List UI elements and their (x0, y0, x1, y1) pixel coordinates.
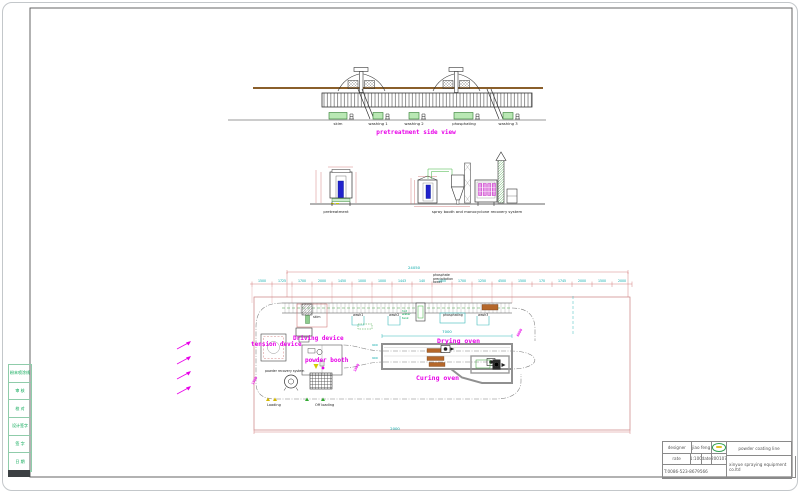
dim-chain-value: 1000 (434, 279, 450, 283)
curing-oven-label: Curing oven (416, 375, 459, 382)
company-cell: xinyue spraying equipment co.ltd (727, 456, 796, 478)
dim-chain-value: 2000 (314, 279, 330, 283)
logo-cell (712, 442, 727, 454)
date-value: 200107 (712, 454, 727, 466)
plan-label-wash1: wash1 (353, 314, 363, 317)
plan-label-wash2: wash2 (389, 314, 399, 317)
spray-booth-elevation (411, 152, 517, 207)
signature-cell-1: 粉末喷涂线 (9, 365, 31, 383)
drying-oven-label: Drying oven (437, 338, 480, 345)
dim-chain-value: 1700 (454, 279, 470, 283)
dim-chain-value: 1450 (334, 279, 350, 283)
offloading-label: Off loading (315, 404, 334, 408)
conveyor-loop-path (256, 303, 535, 399)
plan-label-phosphating: phosphating (443, 314, 463, 317)
dim-chain-value: 170 (534, 279, 550, 283)
dim-bottom: 2000 (390, 427, 400, 431)
dim-oven-length: 7000 (442, 330, 452, 334)
tension-device-label: tension device (251, 342, 302, 348)
pretreatment-elevation (316, 167, 356, 206)
dim-chain-value: 1443 (394, 279, 410, 283)
designer-label: designer (663, 442, 692, 454)
drawing-sheet: { "frame": { "sidebar_cells": ["粉末喷涂线", … (0, 0, 800, 493)
elevation-drawings (310, 152, 545, 207)
side-view-title: pretreatment side view (376, 130, 455, 136)
dim-chain-value: 1500 (514, 279, 530, 283)
signature-strip: 粉末喷涂线 审 核 校 对 设计签字 签 字 日 期 (8, 364, 32, 472)
plan-view-drawing (177, 270, 632, 434)
powder-recovery-system (284, 373, 332, 391)
pretreatment-tanks (329, 113, 513, 120)
plan-label-skim: skim (313, 316, 321, 319)
dim-chain-value: 4500 (494, 279, 510, 283)
designer-value: jiao feng (692, 442, 712, 454)
signature-cell-4: 设计签字 (9, 418, 31, 436)
plan-label-wash3: wash3 (478, 314, 488, 317)
pretreatment-elevation-label: pretreatment (323, 210, 348, 214)
dim-chain-value: 1250 (474, 279, 490, 283)
tank-label-phosphating: phosphating (452, 122, 476, 126)
dim-overall-top: 24050 (408, 266, 420, 270)
conveyor-brown-unit (482, 305, 498, 311)
tank-label-washing2: washing 2 (404, 122, 423, 126)
signature-strip-footer (8, 470, 30, 477)
dim-chain-value: 1725 (274, 279, 290, 283)
dim-chain-value: 140 (414, 279, 430, 283)
burner-motor-1 (441, 346, 455, 353)
drawing-frame (30, 8, 792, 477)
title-block: designer jiao feng rate 1:100 date 20010… (662, 441, 792, 479)
phone-cell: T:0086-523-8679566 (663, 465, 727, 478)
date-label: date (702, 454, 712, 466)
section-arrows (177, 341, 191, 394)
product-cell: powder coating line (727, 442, 792, 456)
dim-chain-value: 2000 (614, 279, 630, 283)
dim-oven-left-a: 900 (372, 344, 378, 347)
dim-chain-value: 1000 (354, 279, 370, 283)
rate-value: 1:100 (691, 454, 701, 466)
drawing-canvas (0, 0, 800, 493)
signature-cell-2: 审 核 (9, 383, 31, 401)
plan-conveyor (282, 303, 512, 313)
dim-chain-value: 1745 (554, 279, 570, 283)
hot-water-station (416, 303, 425, 321)
side-view-drawing (228, 68, 546, 121)
powder-recovery-label: powder recovery system (265, 370, 304, 373)
tank-label-washing3: washing 3 (498, 122, 517, 126)
spray-booth-elevation-label: spray booth and monocyclone recovery sys… (432, 210, 522, 214)
company-logo (712, 443, 726, 452)
rate-label: rate (663, 454, 691, 466)
dim-oven-left-b: 900 (372, 357, 378, 360)
dim-chain-value: 1700 (294, 279, 310, 283)
dim-chain-value: 2000 (574, 279, 590, 283)
dim-chain-value: 1500 (254, 279, 270, 283)
dim-chain-value: 1500 (594, 279, 610, 283)
dim-chain-value: 1000 (374, 279, 390, 283)
tank-label-skim: skim (334, 122, 343, 126)
signature-cell-5: 签 字 (9, 436, 31, 454)
signature-cell-3: 校 对 (9, 400, 31, 418)
tank-label-washing1: washing 1 (368, 122, 387, 126)
powder-booth-label: powder booth (305, 358, 348, 364)
loading-label: Loading (267, 404, 281, 408)
hot-water-note: hot water tank (402, 310, 414, 320)
signature-cell-6: 日 期 (9, 453, 31, 471)
